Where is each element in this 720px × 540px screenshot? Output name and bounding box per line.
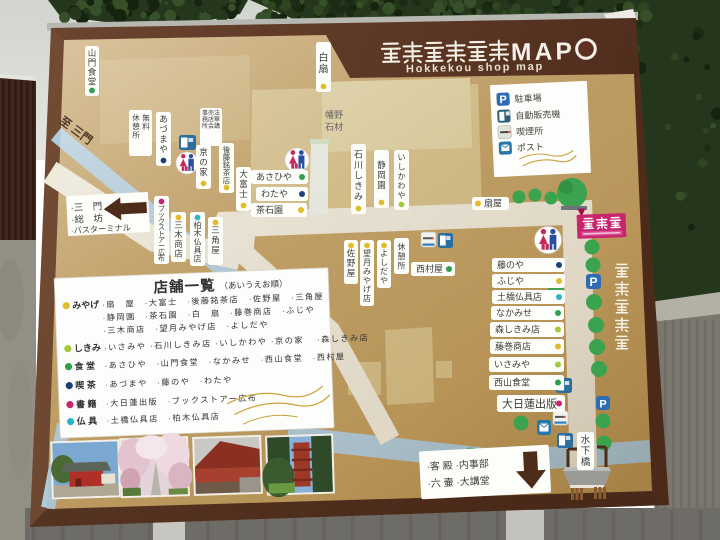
svg-text:みやげ: みやげ <box>72 299 100 311</box>
svg-text:無料: 無料 <box>142 112 150 130</box>
svg-text:大日蓮出版: 大日蓮出版 <box>502 396 557 410</box>
svg-text:いしかわや: いしかわや <box>398 153 406 200</box>
svg-text:扇屋: 扇屋 <box>484 198 502 209</box>
svg-text:P: P <box>499 94 507 106</box>
svg-text:事務所: 事務所 <box>202 109 208 130</box>
svg-text:山門食堂: 山門食堂 <box>88 48 97 86</box>
svg-text:よしだや: よしだや <box>380 249 388 285</box>
svg-text:自動販売機: 自動販売機 <box>515 108 560 121</box>
svg-text:店舗一覧: 店舗一覧 <box>153 276 216 296</box>
svg-text:あさひや: あさひや <box>256 172 292 182</box>
svg-text:休憩所: 休憩所 <box>132 112 140 139</box>
svg-text:喫煙所: 喫煙所 <box>516 125 543 137</box>
svg-text:森しきみ店: 森しきみ店 <box>495 324 540 335</box>
svg-text:休憩所: 休憩所 <box>398 242 406 271</box>
svg-text:仏 具: 仏 具 <box>75 416 97 427</box>
svg-text:石川しきみ: 石川しきみ <box>354 149 363 201</box>
svg-text:京の家: 京の家 <box>199 147 208 177</box>
svg-text:売店会: 売店会 <box>208 109 214 130</box>
svg-text:後藤銘茶店: 後藤銘茶店 <box>223 144 231 184</box>
svg-text:西村屋: 西村屋 <box>416 263 443 274</box>
svg-text:静岡園: 静岡園 <box>377 160 386 190</box>
svg-text:ブックストアー広布: ブックストアー広布 <box>158 204 165 263</box>
svg-text:三角屋: 三角屋 <box>211 225 220 255</box>
svg-text:佐野屋: 佐野屋 <box>347 248 356 278</box>
svg-text:あづまや: あづまや <box>159 114 168 154</box>
svg-text:土橋仏具店: 土橋仏具店 <box>497 291 542 302</box>
svg-text:喫 茶: 喫 茶 <box>75 379 97 391</box>
svg-text:·三 門: ·三 門 <box>70 201 102 214</box>
svg-text:白扇: 白扇 <box>319 51 329 76</box>
svg-text:なかみせ: なかみせ <box>496 308 532 318</box>
svg-text:望月みやげ店: 望月みやげ店 <box>363 248 371 303</box>
svg-text:しきみ: しきみ <box>74 343 101 354</box>
svg-text:藤のや: 藤のや <box>497 259 524 270</box>
svg-text:P: P <box>599 399 606 411</box>
svg-text:茶石園: 茶石園 <box>256 204 283 215</box>
svg-text:駐車場: 駐車場 <box>514 92 541 104</box>
svg-text:柏木仏具店: 柏木仏具店 <box>194 220 202 264</box>
svg-text:ポスト: ポスト <box>517 142 544 153</box>
svg-text:いさみや: いさみや <box>494 360 530 370</box>
svg-text:大富士: 大富士 <box>239 169 248 199</box>
svg-text:ふじや: ふじや <box>497 276 524 286</box>
svg-text:三木商店: 三木商店 <box>174 220 183 259</box>
svg-text:西山食堂: 西山食堂 <box>494 377 530 388</box>
svg-text:わたや: わたや <box>261 189 288 199</box>
svg-text:·総 坊: ·総 坊 <box>71 212 104 226</box>
svg-text:書 籍: 書 籍 <box>76 398 97 410</box>
svg-text:水下橋: 水下橋 <box>581 434 591 468</box>
svg-text:食 堂: 食 堂 <box>73 360 95 372</box>
svg-text:藤巻商店: 藤巻商店 <box>495 341 531 352</box>
svg-text:P: P <box>589 275 597 289</box>
svg-text:法華講: 法華講 <box>214 109 220 130</box>
